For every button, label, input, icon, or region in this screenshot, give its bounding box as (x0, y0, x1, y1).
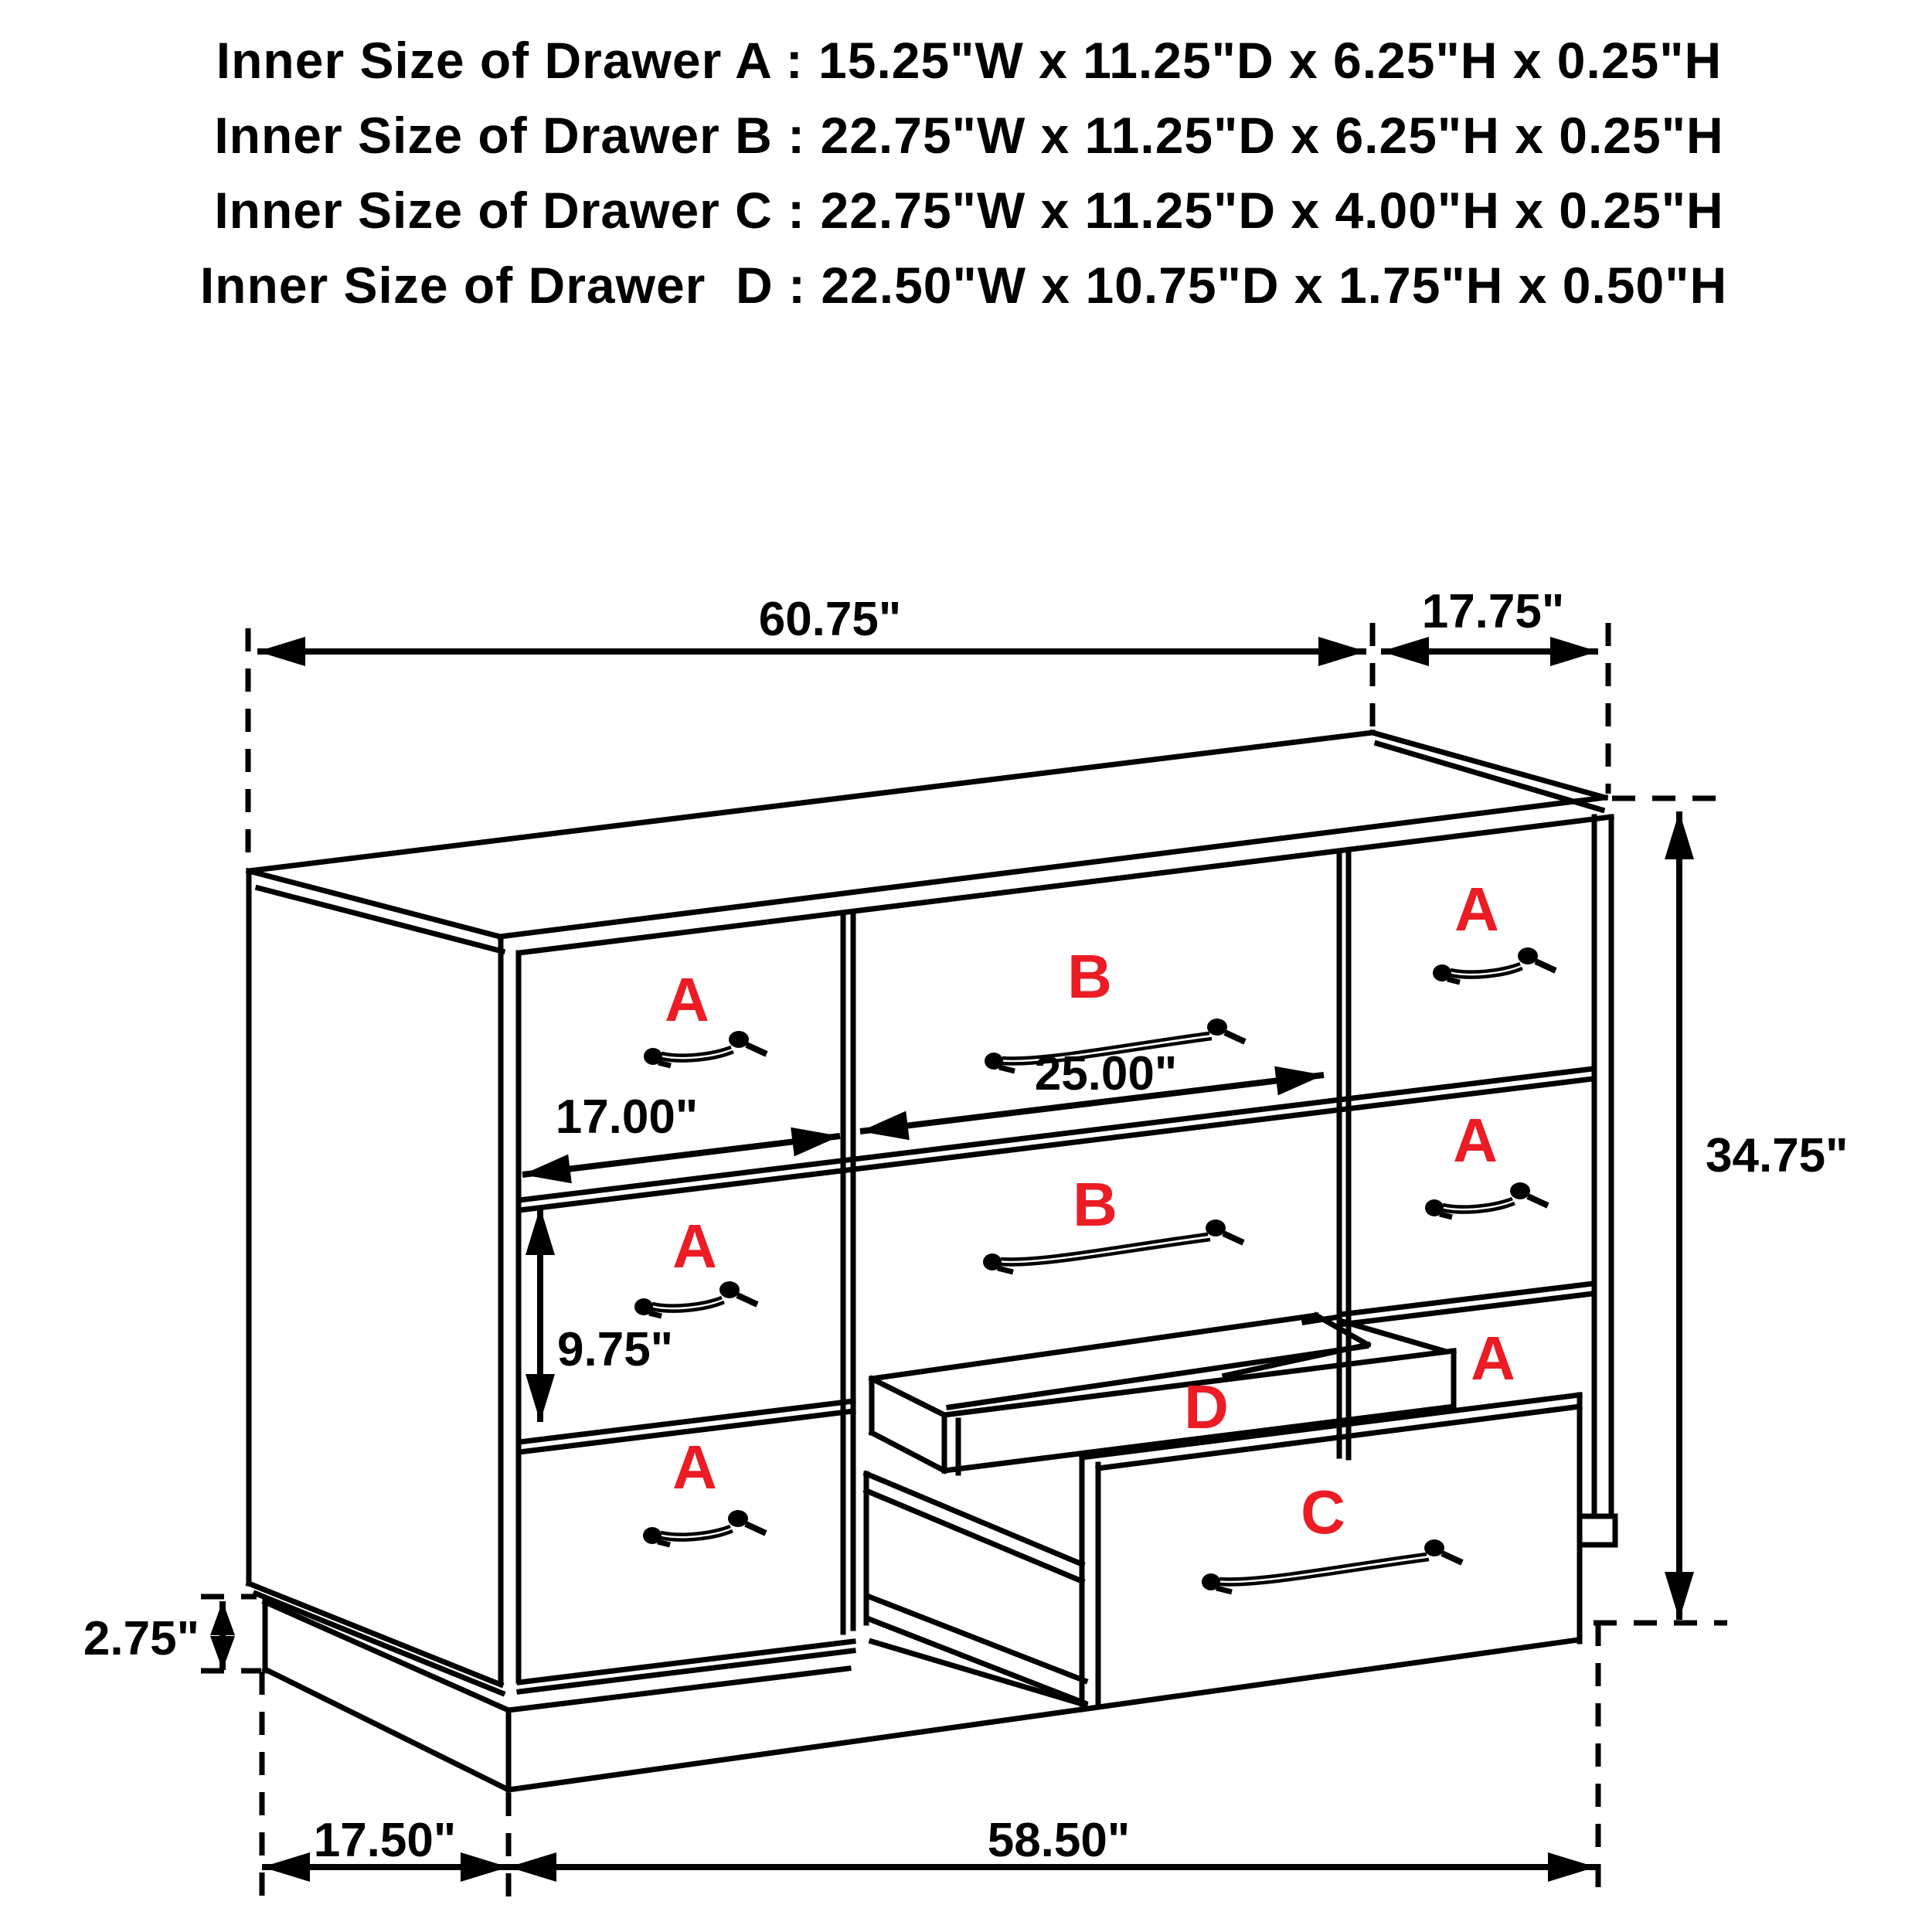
svg-text:A: A (1454, 875, 1499, 944)
svg-text:17.75": 17.75" (1422, 585, 1565, 638)
svg-text:17.50": 17.50" (314, 1814, 457, 1867)
svg-text:A: A (672, 1433, 717, 1502)
svg-text:Inner Size of Drawer A : 15.25: Inner Size of Drawer A : 15.25"W x 11.25… (216, 32, 1722, 89)
svg-text:A: A (1471, 1324, 1515, 1393)
svg-text:A: A (672, 1212, 717, 1281)
svg-text:58.50": 58.50" (988, 1814, 1131, 1867)
svg-text:Inner Size of Drawer B : 22.75: Inner Size of Drawer B : 22.75"W x 11.25… (214, 107, 1723, 164)
svg-text:C: C (1301, 1478, 1345, 1546)
svg-text:17.00": 17.00" (556, 1090, 699, 1144)
svg-text:A: A (665, 965, 709, 1034)
svg-text:B: B (1073, 1170, 1117, 1239)
svg-text:9.75": 9.75" (557, 1323, 673, 1376)
svg-text:2.75": 2.75" (83, 1612, 199, 1665)
svg-text:D: D (1184, 1372, 1229, 1441)
svg-text:Inner Size of Drawer D : 22.5: Inner Size of Drawer D : 22.50"W x 10.75… (200, 257, 1727, 314)
svg-text:34.75": 34.75" (1706, 1129, 1849, 1182)
svg-text:60.75": 60.75" (759, 593, 902, 646)
svg-text:Inner Size of Drawer C : 22.75: Inner Size of Drawer C : 22.75"W x 11.25… (214, 182, 1723, 239)
svg-text:A: A (1453, 1106, 1498, 1175)
svg-text:B: B (1067, 942, 1112, 1011)
